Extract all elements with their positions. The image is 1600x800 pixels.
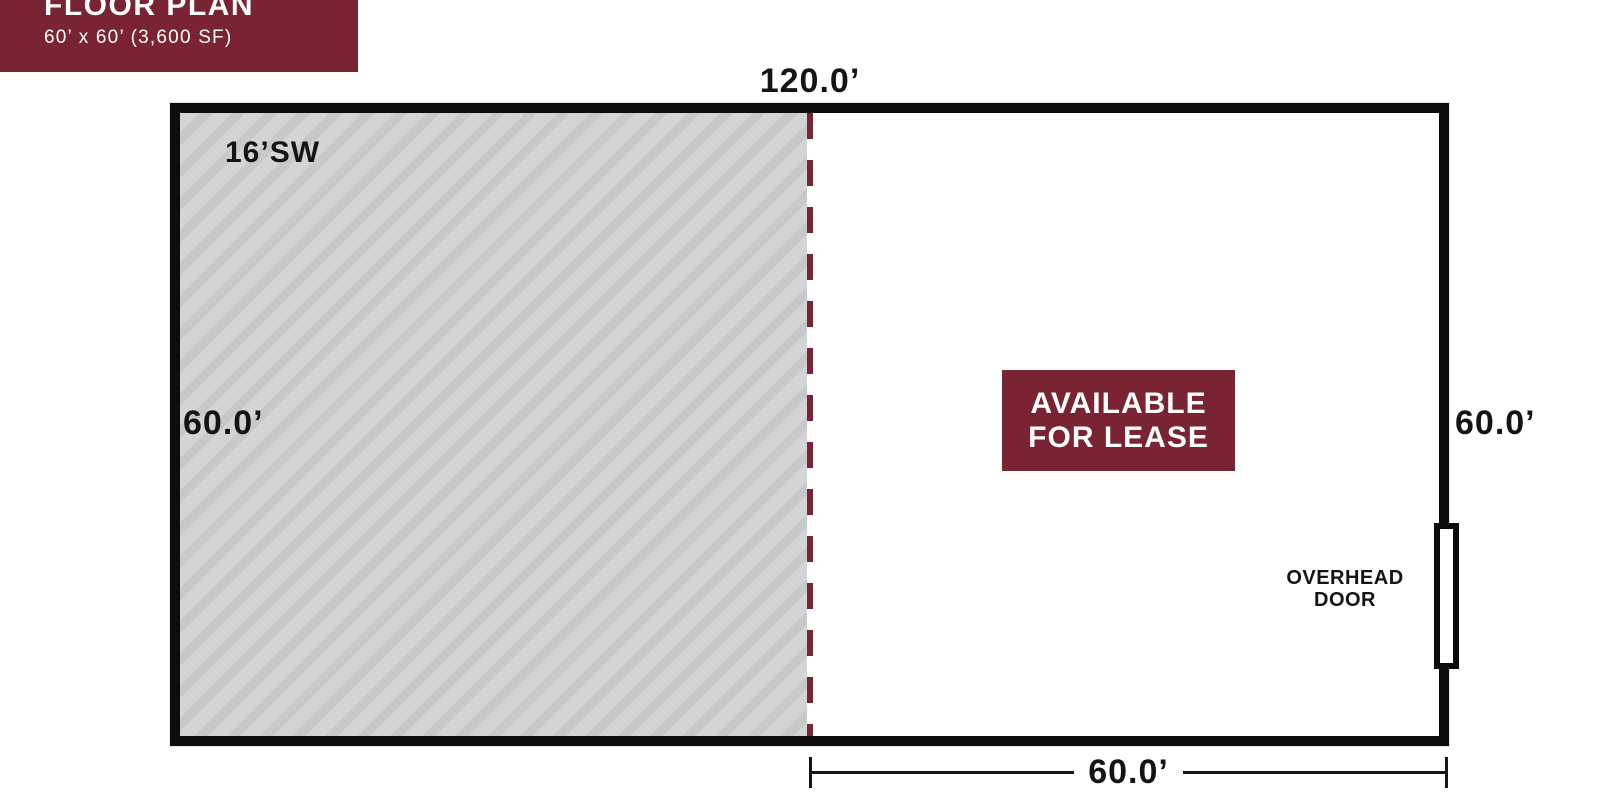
occupied-area-hatch xyxy=(180,113,807,736)
dimension-line-segment-left xyxy=(812,771,1074,774)
dimension-label-top: 120.0’ xyxy=(760,62,861,101)
dimension-line-segment-right xyxy=(1183,771,1445,774)
bottom-dimension-line: 60.0’ xyxy=(809,757,1448,788)
overhead-door-symbol xyxy=(1434,523,1459,669)
plan-subtitle: 60’ x 60’ (3,600 SF) xyxy=(44,27,232,49)
overhead-door-label-line-1: OVERHEAD xyxy=(1259,567,1431,589)
dimension-label-right: 60.0’ xyxy=(1455,404,1536,443)
floor-plan: FLOOR PLAN 60’ x 60’ (3,600 SF) 120.0’ 1… xyxy=(0,0,1600,800)
available-for-lease-badge: AVAILABLE FOR LEASE xyxy=(1002,370,1235,471)
dimension-label-bottom: 60.0’ xyxy=(1088,757,1169,788)
sidewall-height-label: 16’SW xyxy=(225,136,320,170)
overhead-door-label: OVERHEAD DOOR xyxy=(1259,567,1431,611)
plan-title: FLOOR PLAN xyxy=(44,0,254,23)
dimension-label-left: 60.0’ xyxy=(183,404,264,443)
badge-line-2: FOR LEASE xyxy=(1028,421,1209,455)
title-block: FLOOR PLAN 60’ x 60’ (3,600 SF) xyxy=(0,0,358,72)
badge-line-1: AVAILABLE xyxy=(1030,387,1206,421)
building-outline xyxy=(170,103,1449,746)
dimension-tick-right xyxy=(1445,757,1448,788)
demising-dashed-line xyxy=(807,113,813,736)
overhead-door-label-line-2: DOOR xyxy=(1259,589,1431,611)
